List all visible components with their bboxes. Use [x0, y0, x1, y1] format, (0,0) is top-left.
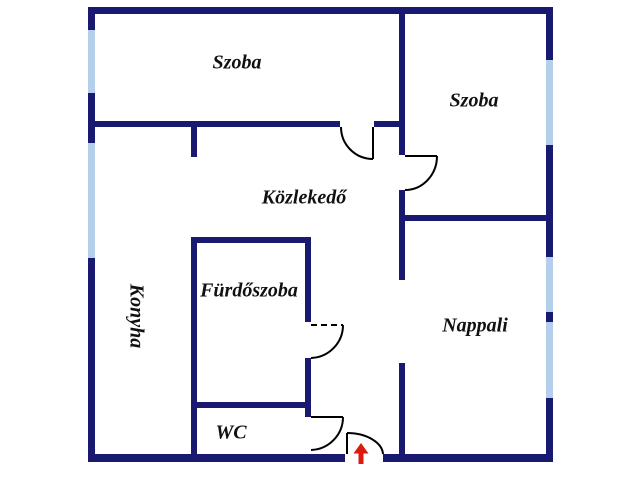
window-left-1 [88, 30, 95, 93]
room-label-wc: WC [215, 422, 246, 445]
floor-plan-drawing [0, 0, 640, 480]
floor-plan: Szoba Szoba Közlekedő Konyha Fürdőszoba … [0, 0, 640, 480]
outer-wall-top [88, 7, 553, 14]
outer-wall-left-seg2 [88, 93, 95, 143]
wall-furdoszoba-top [191, 237, 311, 243]
door-arc-wc [311, 417, 343, 450]
room-label-konyha: Konyha [125, 284, 148, 348]
wall-central-vertical-seg2 [399, 190, 405, 280]
wall-szoba1-bottom-left [95, 121, 340, 127]
door-arc-szoba1 [341, 127, 373, 159]
wall-furdoszoba-right-seg2 [305, 358, 311, 417]
room-label-szoba-2: Szoba [450, 90, 499, 113]
outer-wall-left-seg3 [88, 258, 95, 462]
outer-wall-left-seg1 [88, 7, 95, 30]
wall-furdoszoba-left [191, 237, 197, 462]
room-label-szoba-1: Szoba [213, 52, 262, 75]
wall-konyha-stub [191, 121, 197, 157]
door-arc-szoba2 [405, 156, 437, 190]
wall-szoba2-bottom [399, 215, 546, 221]
window-right-3 [546, 322, 553, 398]
outer-wall-bottom-left [88, 454, 345, 462]
window-right-2 [546, 257, 553, 312]
outer-wall-right-seg2 [546, 145, 553, 257]
room-label-kozlekedo: Közlekedő [262, 187, 346, 210]
window-right-1 [546, 60, 553, 145]
window-right-mullion [546, 312, 553, 322]
wall-central-vertical-seg1 [399, 14, 405, 155]
entrance-arrow-icon [354, 443, 369, 464]
outer-wall-right-seg3 [546, 398, 553, 462]
room-label-nappali: Nappali [442, 315, 508, 338]
outer-wall-right-seg1 [546, 7, 553, 60]
door-arc-furdoszoba [311, 325, 343, 358]
wall-central-vertical-seg3 [399, 363, 405, 454]
room-label-furdoszoba: Fürdőszoba [200, 280, 298, 303]
outer-wall-bottom-right [383, 454, 553, 462]
window-left-2 [88, 143, 95, 258]
wall-wc-divider [191, 402, 311, 408]
wall-furdoszoba-right-seg1 [305, 237, 311, 322]
